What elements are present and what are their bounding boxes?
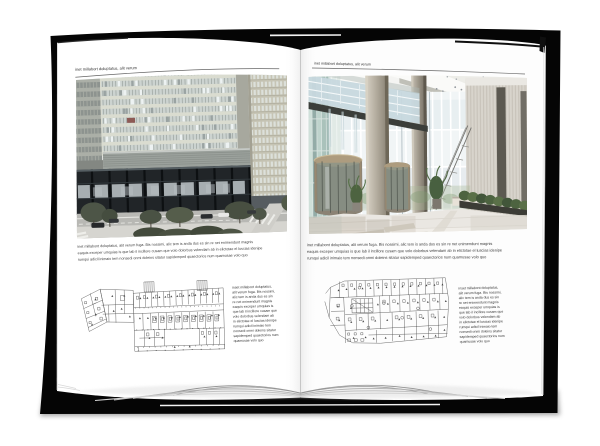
- svg-text:quamusae volo quo: quamusae volo quo: [234, 338, 264, 343]
- svg-text:quamusae volo quo: quamusae volo quo: [460, 339, 490, 344]
